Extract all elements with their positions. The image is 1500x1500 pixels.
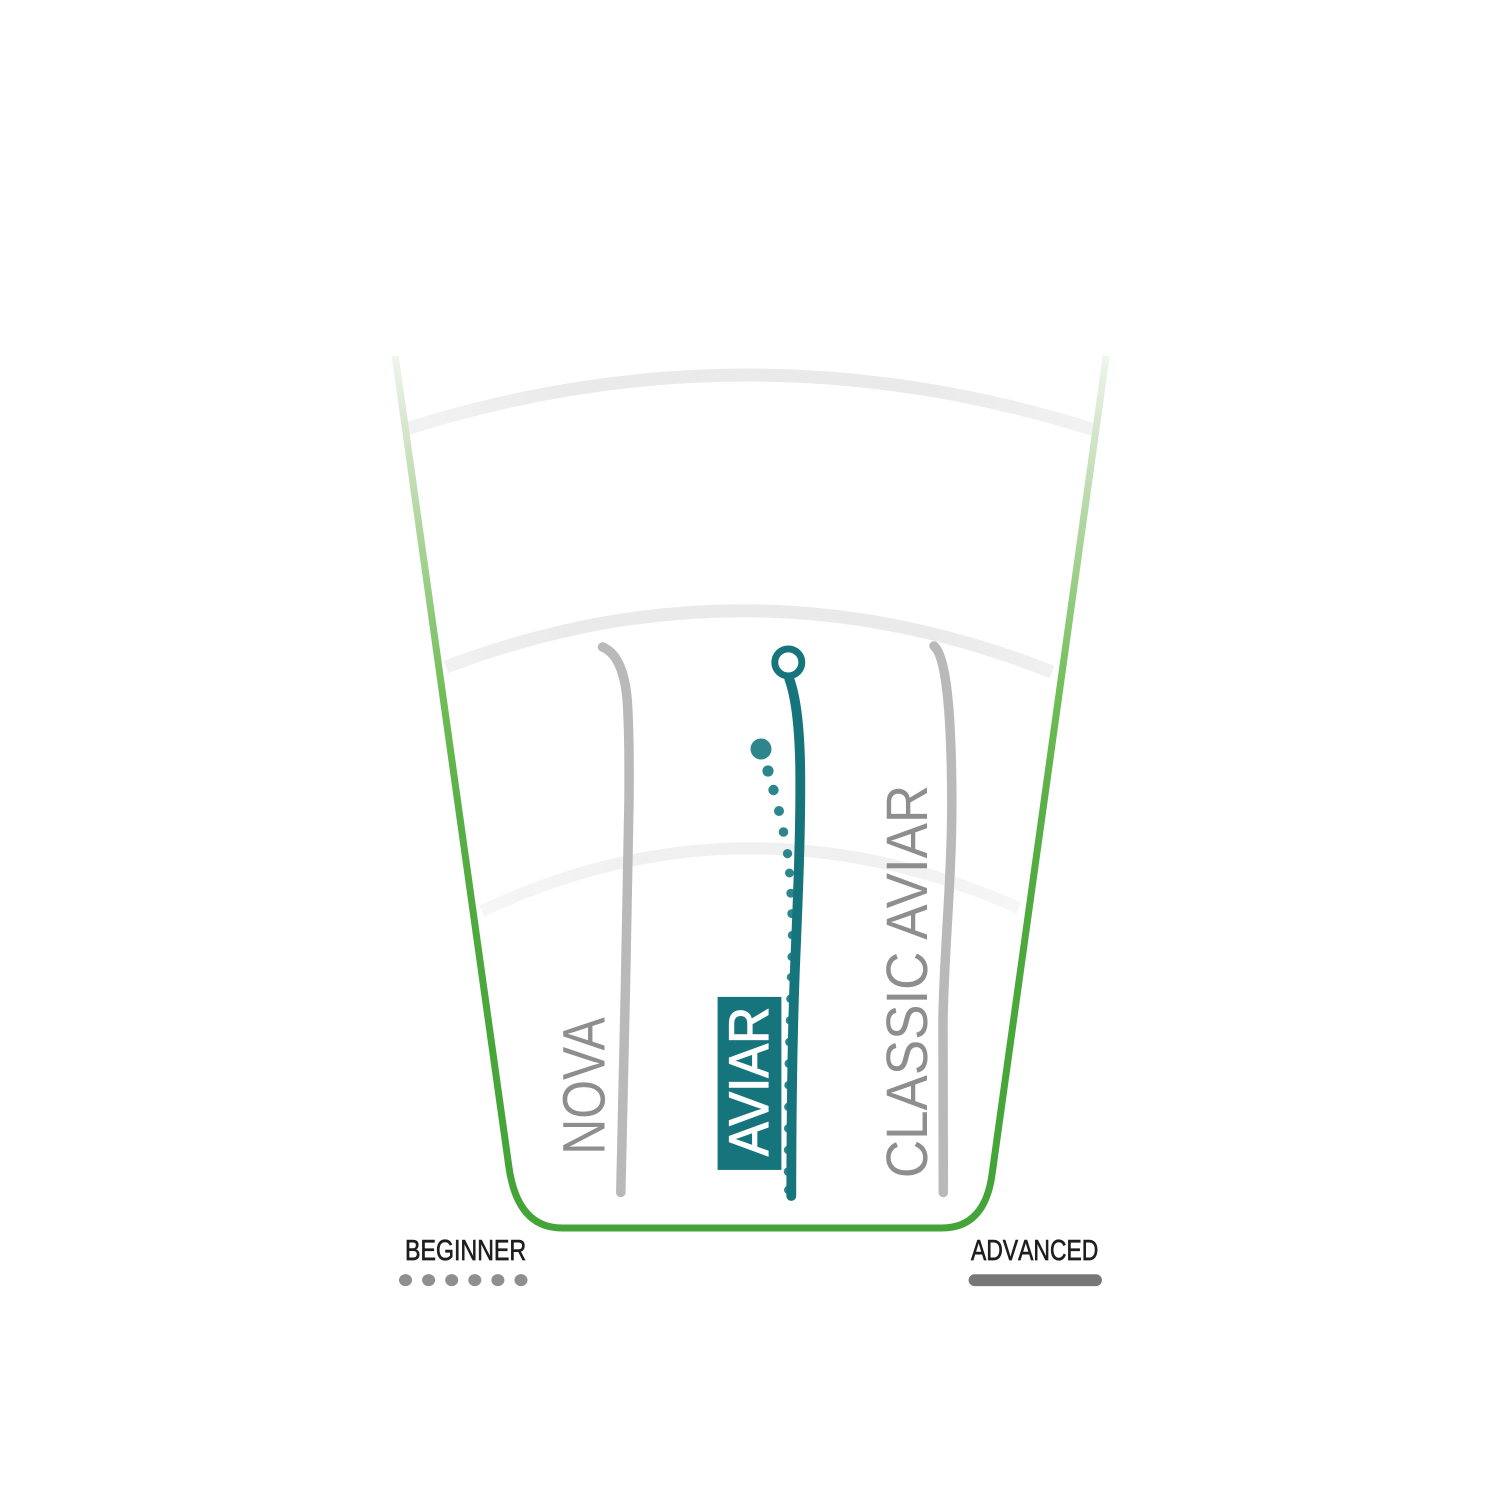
svg-text:NOVA: NOVA	[551, 1017, 618, 1154]
svg-text:AVIAR: AVIAR	[717, 1007, 780, 1156]
svg-text:CLASSIC AVIAR: CLASSIC AVIAR	[875, 785, 940, 1178]
